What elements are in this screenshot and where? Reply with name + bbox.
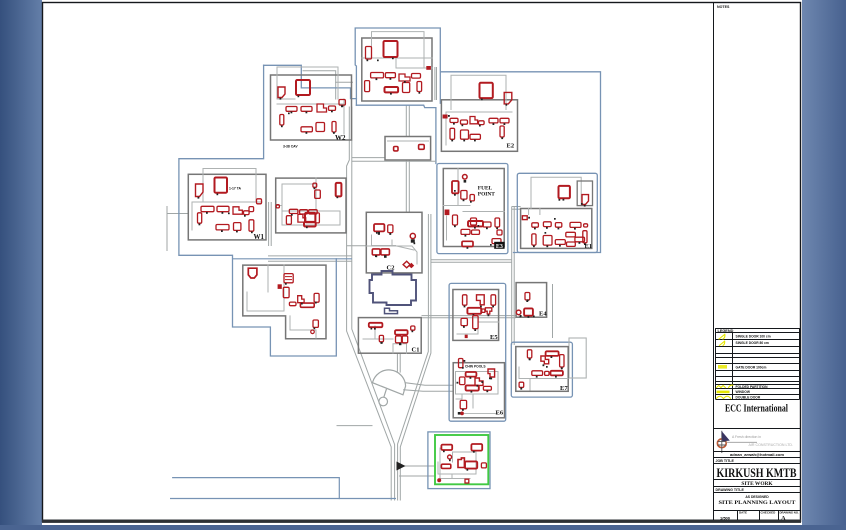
svg-text:SINGLE DOOR 100 cm: SINGLE DOOR 100 cm [736, 335, 771, 339]
svg-text:JOB TITLE: JOB TITLE [716, 459, 735, 463]
svg-text:E6: E6 [496, 410, 504, 417]
svg-text:DATE: DATE [739, 511, 747, 515]
svg-text:AIR CONSTRUCTION LTD.: AIR CONSTRUCTION LTD. [749, 443, 793, 447]
svg-text:ECC International: ECC International [725, 404, 788, 415]
svg-text:E2: E2 [507, 143, 515, 150]
svg-text:1-17 TA: 1-17 TA [229, 187, 242, 191]
svg-text:A: A [781, 515, 786, 522]
svg-text:E5: E5 [490, 334, 498, 341]
svg-text:C1: C1 [412, 347, 420, 354]
svg-text:3-38 CAV: 3-38 CAV [283, 145, 298, 149]
svg-text:adnan_arwah@hotmail.com: adnan_arwah@hotmail.com [730, 452, 784, 457]
svg-text:W1: W1 [254, 233, 265, 241]
svg-text:A Fresh direction in: A Fresh direction in [732, 435, 761, 439]
svg-text:CHECKED: CHECKED [761, 511, 777, 515]
svg-text:GATE DOOR 100cm: GATE DOOR 100cm [736, 365, 767, 369]
svg-text:E4: E4 [539, 311, 547, 318]
svg-text:FOLDED PARTITION: FOLDED PARTITION [736, 385, 769, 389]
svg-text:KIRKUSH KMTB: KIRKUSH KMTB [717, 466, 797, 480]
svg-text:E7: E7 [560, 385, 568, 392]
svg-text:DOUBLE DOOR: DOUBLE DOOR [736, 395, 761, 399]
svg-text:SINGLE DOOR 80 cm: SINGLE DOOR 80 cm [736, 341, 769, 345]
svg-text:W2: W2 [335, 134, 346, 142]
svg-text:SITE PLANNING LAYOUT: SITE PLANNING LAYOUT [719, 500, 797, 506]
svg-text:NOTES: NOTES [717, 5, 730, 9]
svg-text:WINDOW: WINDOW [736, 390, 751, 394]
svg-text:AS DESIGNED: AS DESIGNED [745, 495, 769, 499]
svg-text:E1: E1 [585, 243, 593, 250]
svg-text:LEGEND: LEGEND [718, 329, 734, 333]
svg-text:E3: E3 [496, 244, 503, 250]
svg-text:CHIN POOLS: CHIN POOLS [465, 365, 486, 369]
svg-text:1/500: 1/500 [720, 516, 731, 521]
svg-text:POINT: POINT [478, 191, 495, 197]
svg-text:SITE WORK: SITE WORK [741, 481, 773, 487]
svg-text:DRAWING TITLE: DRAWING TITLE [716, 488, 745, 492]
